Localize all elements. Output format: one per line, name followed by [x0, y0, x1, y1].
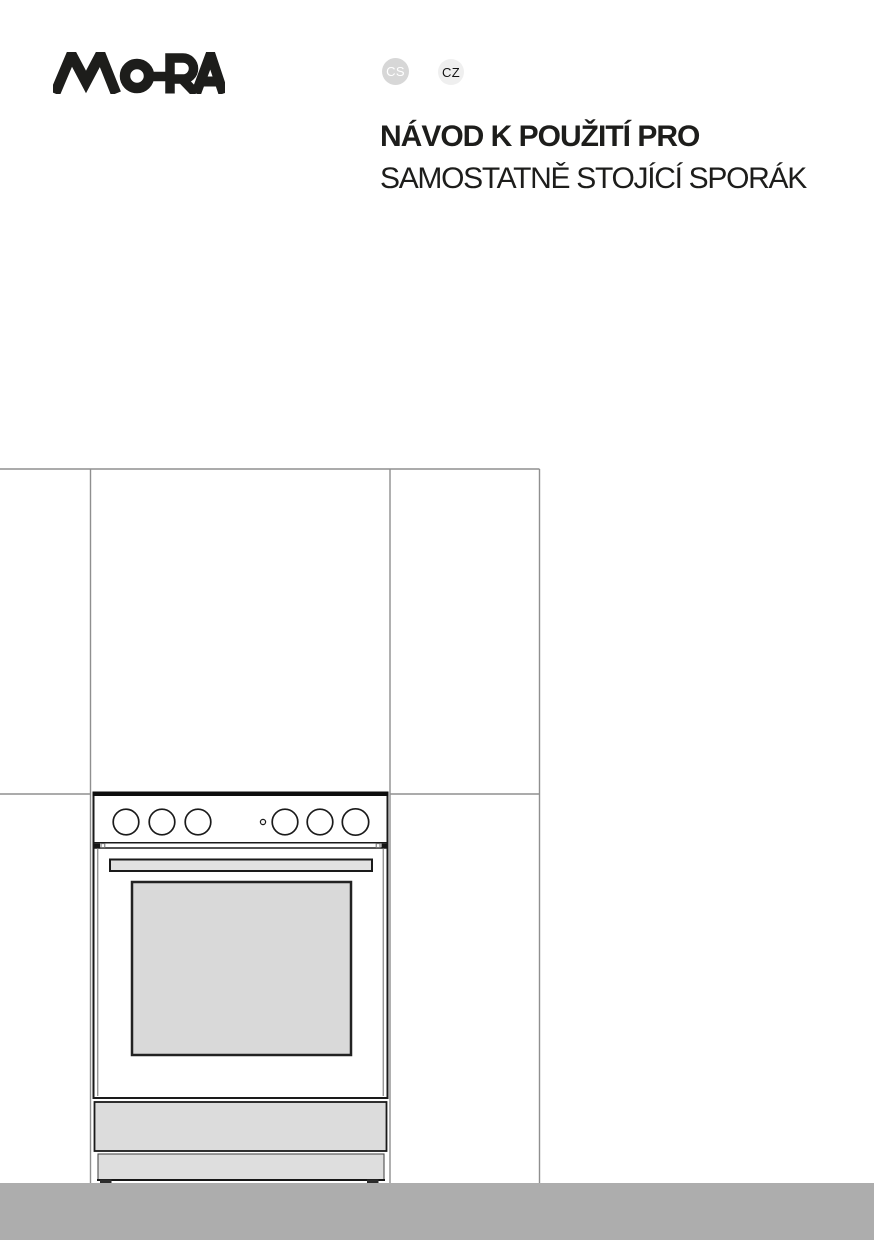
manual-cover-page: CS CZ NÁVOD K POUŽITÍ PRO SAMOSTATNĚ STO…	[0, 0, 874, 1240]
language-badge-cs: CS	[382, 58, 409, 85]
language-badge-cz: CZ	[438, 59, 464, 85]
freestanding-cooker-illustration	[0, 440, 874, 1184]
indicator-light	[260, 819, 265, 824]
logo-letter-r	[170, 58, 196, 94]
document-title: NÁVOD K POUŽITÍ PRO SAMOSTATNĚ STOJÍCÍ S…	[380, 116, 870, 200]
oven-door-glass	[132, 882, 351, 1055]
logo-letter-m	[55, 55, 116, 94]
control-knob	[113, 809, 139, 835]
control-knob	[307, 809, 333, 835]
oven-handle	[110, 860, 372, 872]
kitchen-wall-lines	[0, 469, 540, 1184]
door-hinge-left	[95, 844, 101, 848]
logo-letter-o	[125, 64, 149, 88]
door-hinge-right-tick	[376, 844, 380, 848]
door-hinge-left-tick	[101, 844, 105, 848]
logo-letter-a	[196, 55, 224, 94]
control-knob	[342, 809, 368, 835]
control-knob	[272, 809, 298, 835]
control-knob	[185, 809, 211, 835]
door-hinge-right	[382, 844, 388, 848]
mora-logo	[53, 52, 225, 94]
oven-door	[94, 843, 388, 1096]
title-line-1: NÁVOD K POUŽITÍ PRO	[380, 116, 870, 158]
plinth	[97, 1154, 385, 1184]
plinth-panel	[98, 1154, 384, 1180]
control-panel	[113, 809, 368, 835]
footer-bar	[0, 1183, 874, 1240]
control-knob	[149, 809, 175, 835]
storage-drawer	[95, 1102, 387, 1151]
title-line-2: SAMOSTATNĚ STOJÍCÍ SPORÁK	[380, 158, 870, 200]
cooker-body	[93, 792, 389, 1185]
hob-top-edge	[93, 792, 389, 797]
